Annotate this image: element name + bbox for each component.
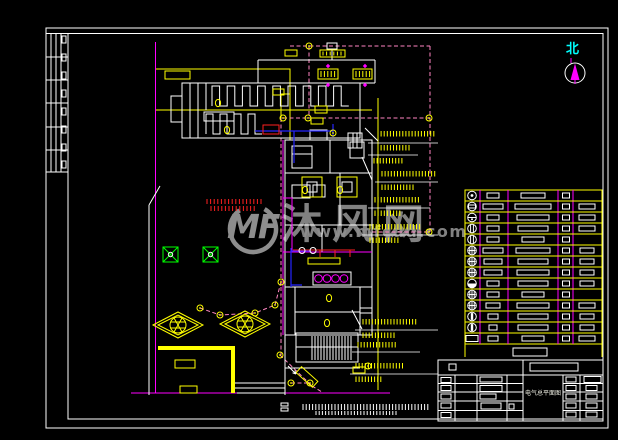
scale-bar-ends	[281, 403, 288, 411]
north-arrow-icon	[565, 58, 585, 84]
watermark-logo-swoosh-icon	[222, 198, 285, 261]
legend-rows	[465, 191, 602, 341]
drawing-plan	[0, 0, 618, 440]
main-building	[235, 128, 378, 395]
power-lines-blue	[255, 124, 333, 287]
equipment-inner-squares	[307, 182, 352, 192]
junction-circles	[299, 248, 351, 286]
washer-circles	[315, 275, 348, 283]
title-block-drawing-title: 电气总平面图	[523, 390, 563, 398]
title-block	[438, 360, 603, 421]
manhole-symbols	[163, 247, 218, 262]
binding-strip-table	[46, 34, 68, 173]
landscape-planters	[153, 311, 270, 338]
north-label: 北	[566, 38, 579, 57]
cad-canvas[interactable]: MF 沐风网 www.mfcad.com	[0, 0, 618, 440]
wiring-callouts	[350, 131, 438, 382]
